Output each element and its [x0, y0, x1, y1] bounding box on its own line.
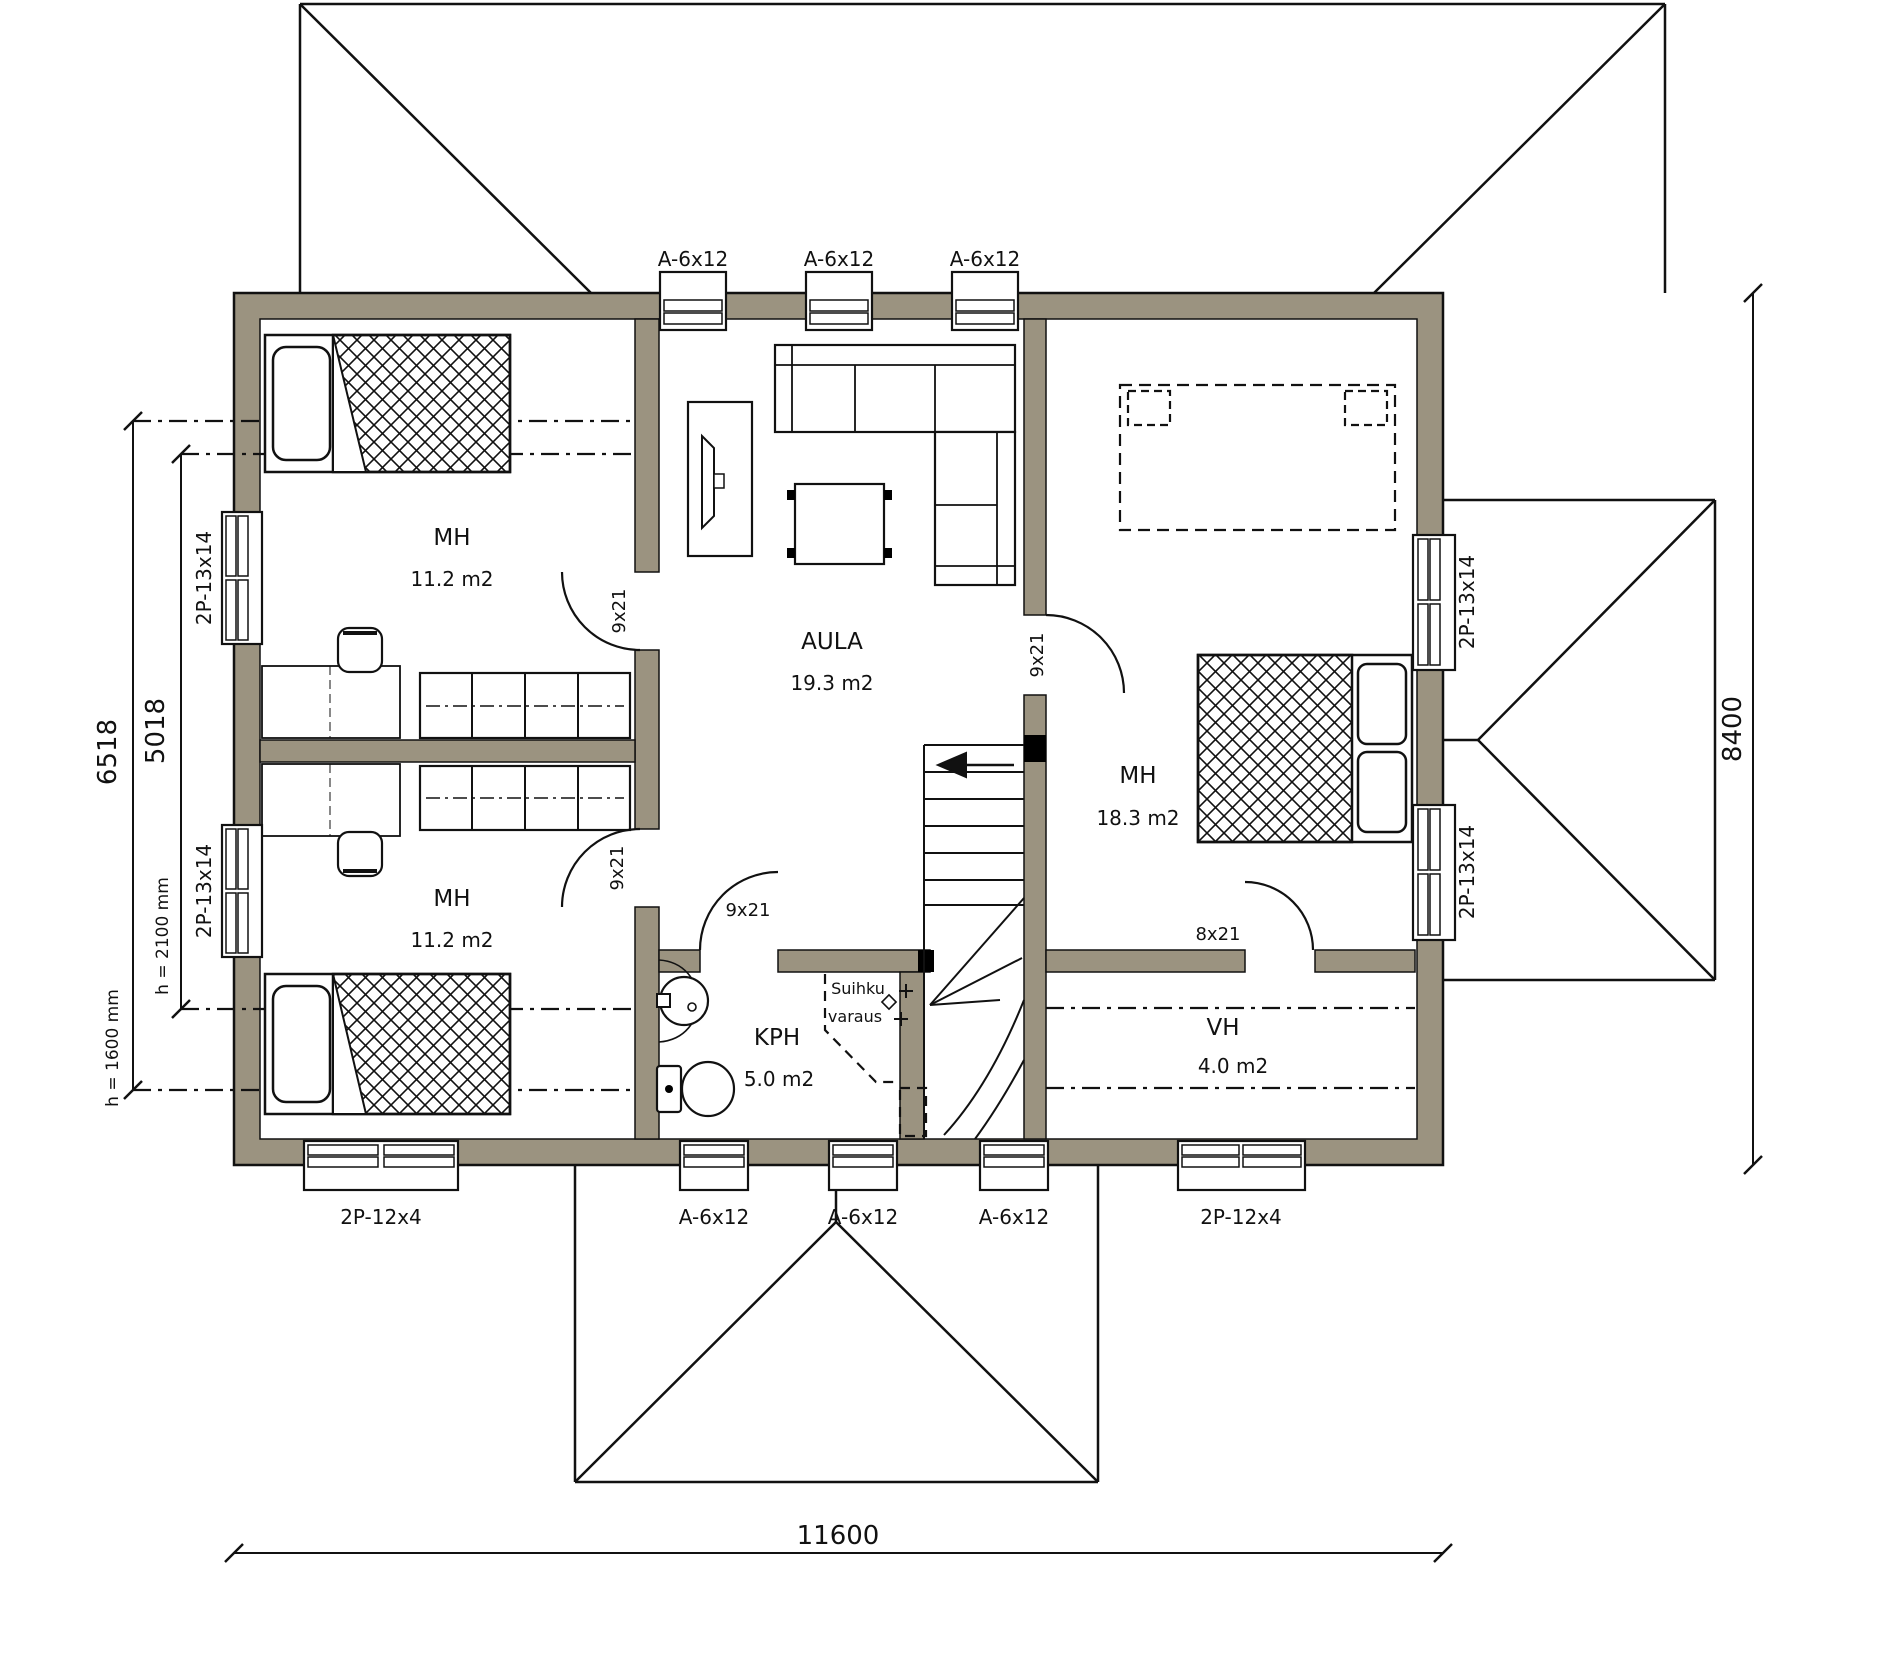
roof-outline-right-bay [1443, 500, 1715, 980]
room-label-vh: VH [1206, 1015, 1239, 1041]
room-area-mh-right: 18.3 m2 [1096, 806, 1179, 830]
window-label-top-2: A-6x12 [804, 247, 874, 271]
window-bottom-a1 [680, 1141, 748, 1190]
room-area-mh-lower-left: 11.2 m2 [410, 928, 493, 952]
door-label-vh: 8x21 [1195, 924, 1240, 945]
window-bottom-2p-left [304, 1141, 458, 1190]
room-label-mh-right: MH [1119, 763, 1156, 789]
room-area-kph: 5.0 m2 [744, 1067, 814, 1091]
shower-note-line1: Suihku [831, 979, 885, 998]
window-label-right-1: 2P-13x14 [1455, 555, 1479, 649]
chimney-block [1024, 735, 1046, 762]
door-label-upper-left: 9x21 [609, 588, 630, 633]
room-label-mh-lower-left: MH [433, 886, 470, 912]
window-label-top-1: A-6x12 [658, 247, 728, 271]
door-label-right: 9x21 [1027, 632, 1048, 677]
window-left-2 [222, 825, 262, 957]
window-label-left-1: 2P-13x14 [192, 531, 216, 625]
window-label-bottom-3: A-6x12 [828, 1205, 898, 1229]
room-area-mh-upper-left: 11.2 m2 [410, 567, 493, 591]
window-label-left-2: 2P-13x14 [192, 844, 216, 938]
window-top-2 [806, 272, 872, 330]
dim-total-width: 11600 [797, 1521, 880, 1551]
floor-plan-drawing: A-6x12 A-6x12 A-6x12 2P-12x4 A-6x12 A-6x… [0, 0, 1900, 1665]
dim-left-inner: 5018 [141, 698, 171, 764]
dim-total-depth: 8400 [1718, 696, 1748, 762]
window-label-bottom-2: A-6x12 [679, 1205, 749, 1229]
window-top-3 [952, 272, 1018, 330]
window-label-bottom-5: 2P-12x4 [1200, 1205, 1282, 1229]
window-bottom-2p-right [1178, 1141, 1305, 1190]
toilet [657, 1062, 734, 1116]
room-area-aula: 19.3 m2 [790, 671, 873, 695]
dim-height-outer: h = 1600 mm [103, 989, 123, 1107]
floor-plan: A-6x12 A-6x12 A-6x12 2P-12x4 A-6x12 A-6x… [0, 0, 1900, 1665]
bed-double [1198, 655, 1412, 842]
door-label-kph: 9x21 [725, 900, 770, 921]
window-left-1 [222, 512, 262, 644]
window-label-bottom-4: A-6x12 [979, 1205, 1049, 1229]
coffee-table [787, 484, 892, 564]
room-label-mh-upper-left: MH [433, 525, 470, 551]
window-label-bottom-1: 2P-12x4 [340, 1205, 422, 1229]
window-bottom-a2 [829, 1141, 897, 1190]
window-bottom-a3 [980, 1141, 1048, 1190]
door-label-lower-left: 9x21 [607, 845, 628, 890]
room-area-vh: 4.0 m2 [1198, 1054, 1268, 1078]
dim-height-inner: h = 2100 mm [153, 877, 173, 995]
window-label-top-3: A-6x12 [950, 247, 1020, 271]
window-right-1 [1413, 535, 1455, 670]
bed-single-lower [265, 974, 510, 1114]
room-label-kph: KPH [754, 1025, 800, 1051]
window-top-1 [660, 272, 726, 330]
wardrobes-upper [420, 673, 630, 738]
shower-note-line2: varaus [828, 1007, 882, 1026]
window-right-2 [1413, 805, 1455, 940]
bed-single-upper [265, 335, 510, 472]
stair-wall-block [918, 950, 934, 972]
room-label-aula: AULA [801, 629, 863, 655]
tv-bench [688, 402, 752, 556]
wardrobes-lower [420, 766, 630, 830]
window-label-right-2: 2P-13x14 [1455, 825, 1479, 919]
dim-left-outer: 6518 [93, 719, 123, 785]
